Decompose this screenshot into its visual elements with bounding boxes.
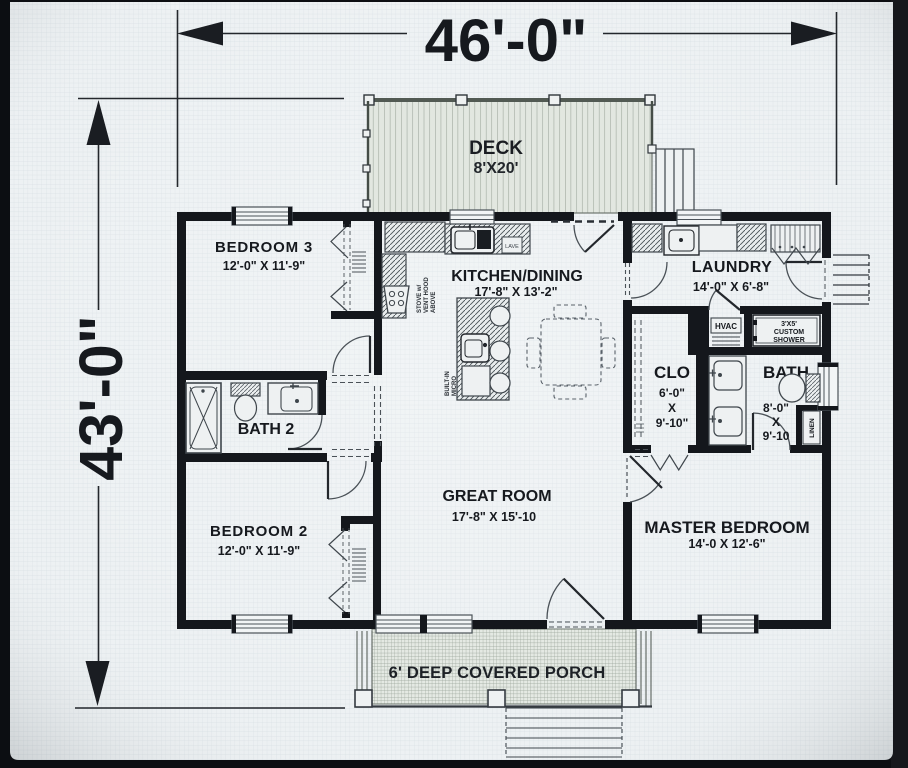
svg-text:STOVE w/: STOVE w/ xyxy=(417,284,423,313)
svg-text:HVAC: HVAC xyxy=(715,322,737,331)
svg-text:8'X20': 8'X20' xyxy=(474,160,519,177)
svg-text:LAUNDRY: LAUNDRY xyxy=(692,259,772,276)
svg-text:3'X5': 3'X5' xyxy=(781,321,797,328)
svg-text:X: X xyxy=(668,401,676,415)
svg-text:ABOVE: ABOVE xyxy=(431,292,437,313)
svg-text:CUSTOM: CUSTOM xyxy=(774,329,804,336)
svg-text:9'-10: 9'-10 xyxy=(763,429,790,443)
svg-text:17'-8" X 13'-2": 17'-8" X 13'-2" xyxy=(474,285,557,299)
svg-text:BEDROOM 3: BEDROOM 3 xyxy=(215,239,313,256)
svg-text:CLO: CLO xyxy=(654,363,690,382)
svg-text:BUILT-IN: BUILT-IN xyxy=(445,371,451,396)
svg-text:9'-10": 9'-10" xyxy=(656,416,689,430)
svg-text:46'-0": 46'-0" xyxy=(425,7,588,74)
svg-text:LAVE: LAVE xyxy=(505,244,519,250)
svg-text:BEDROOM 2: BEDROOM 2 xyxy=(210,523,308,540)
svg-text:LINEN: LINEN xyxy=(809,418,816,438)
svg-text:SHOWER: SHOWER xyxy=(773,337,805,344)
svg-text:17'-8" X 15'-10: 17'-8" X 15'-10 xyxy=(452,510,536,524)
svg-text:BATH 2: BATH 2 xyxy=(238,421,295,438)
svg-text:14'-0 X 12'-6": 14'-0 X 12'-6" xyxy=(688,537,765,551)
svg-text:14'-0" X 6'-8": 14'-0" X 6'-8" xyxy=(693,280,769,294)
svg-text:MASTER BEDROOM: MASTER BEDROOM xyxy=(644,518,809,537)
svg-text:VENT HOOD: VENT HOOD xyxy=(424,277,430,313)
svg-text:6' DEEP COVERED PORCH: 6' DEEP COVERED PORCH xyxy=(389,664,606,682)
svg-text:KITCHEN/DINING: KITCHEN/DINING xyxy=(451,268,583,285)
svg-text:DECK: DECK xyxy=(469,138,523,159)
svg-text:12'-0" X 11'-9": 12'-0" X 11'-9" xyxy=(218,544,301,558)
svg-text:8'-0": 8'-0" xyxy=(763,401,789,415)
svg-text:GREAT ROOM: GREAT ROOM xyxy=(442,488,551,505)
svg-text:12'-0" X 11'-9": 12'-0" X 11'-9" xyxy=(223,259,306,273)
svg-text:43'-0": 43'-0" xyxy=(67,315,135,481)
svg-text:6'-0": 6'-0" xyxy=(659,386,685,400)
svg-text:MICRO: MICRO xyxy=(452,376,458,396)
svg-text:X: X xyxy=(772,415,780,429)
